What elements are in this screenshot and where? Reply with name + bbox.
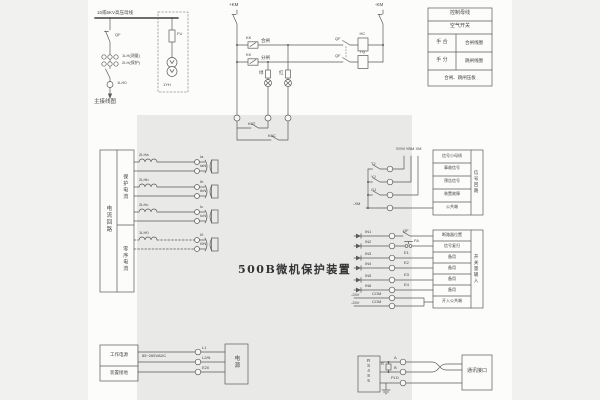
winding-2lhb: 2LHb xyxy=(139,178,149,183)
contact-tj-label: TJ xyxy=(371,162,375,167)
signal-row-common: 公共端 xyxy=(433,205,471,210)
red-lamp-label: 红 xyxy=(279,70,284,75)
ct-zero-label: 1LH0 xyxy=(117,81,127,86)
winding-2lhc: 2LHc xyxy=(139,203,148,208)
com-label-1: COM xyxy=(372,292,381,297)
input-row-spare3: 备用 xyxy=(433,277,471,282)
terminal-i0n: I0N xyxy=(200,242,206,247)
comm-port-label: 通讯接口 xyxy=(462,369,492,375)
input-row-breaker-pos: 断路器位置 xyxy=(433,233,471,238)
trip-coil-label: TQ xyxy=(360,50,366,55)
protect-current-cell: 保护电流 xyxy=(122,174,128,200)
device-title: 500B微机保护装置 xyxy=(238,264,351,277)
legend-air-switch: 空气开关 xyxy=(428,24,492,30)
kk-close-label: KK xyxy=(246,36,251,41)
twisted-pair xyxy=(432,362,462,372)
legend-control-bus: 控制母线 xyxy=(428,11,492,17)
legend-trip-coil: 跳闸线圈 xyxy=(456,58,492,63)
terminal-ibn: IbN xyxy=(200,189,206,194)
signal-row-busbar: 信号小母线 xyxy=(433,154,471,159)
current-circuit-side-label: 电流回路 xyxy=(105,205,111,233)
qf-aux1-label: QF xyxy=(335,37,341,42)
legend-manual-trip: 手 分 xyxy=(428,58,456,64)
input-in6-label: IN6 xyxy=(365,284,371,289)
spare-wire-e1: E1 xyxy=(404,251,409,256)
contact-gj-label: GJ xyxy=(371,188,376,193)
input-in5-label: IN5 xyxy=(365,274,371,279)
terminal-ic: Ic xyxy=(200,205,203,210)
input-row-reset: 信号复归 xyxy=(433,244,471,249)
minus24v-label-1: -24V xyxy=(351,293,359,298)
terminal-ia: Ia xyxy=(200,155,203,160)
com-label-2: COM xyxy=(372,300,381,305)
k0t-contact-label: K0T xyxy=(248,122,255,127)
breaker-label: QF xyxy=(115,33,121,38)
input-in3-label: IN3 xyxy=(365,252,371,257)
spare-wire-e4: E4 xyxy=(404,283,409,288)
terminal-e20: E20 xyxy=(202,366,209,371)
legend-manual-close: 手 合 xyxy=(428,40,456,46)
input-in4-label: IN4 xyxy=(365,262,371,267)
comm-shield-label: PLD xyxy=(391,376,399,381)
pt-label: 1YH xyxy=(163,83,171,88)
main-diagram-caption: 主接线图 xyxy=(94,99,116,105)
ct-measure-label: 1LH(测量) xyxy=(122,54,140,59)
close-label: 合闸 xyxy=(261,38,270,43)
input-in1-label: IN1 xyxy=(365,230,371,235)
qf-position-contact-label: QF xyxy=(403,229,409,234)
kk-trip-contact xyxy=(248,59,258,65)
signal-row-alarm: 预告信号 xyxy=(433,179,471,184)
comm-b-label: B xyxy=(394,366,397,371)
kk-close-contact xyxy=(248,42,258,48)
hv-busbar-label: 10或6KV高压母线 xyxy=(97,10,133,15)
qf-aux2-label: QF xyxy=(335,54,341,59)
rs485-label: RS485 xyxy=(366,358,371,383)
voltage-range-label: 85~265VADC xyxy=(142,354,166,359)
fuse-symbol xyxy=(169,30,175,42)
terminal-ian: IaN xyxy=(200,164,206,169)
terminal-l2n: L2/N xyxy=(202,356,210,361)
schematic-page: 10或6KV高压母线 QF 1LH(测量) 2LH(保护) 1LH0 FU 1Y… xyxy=(0,0,600,400)
ct-protect-label: 2LH(保护) xyxy=(122,61,140,66)
input-in2-label: IN2 xyxy=(365,240,371,245)
power-module-label: 电源 xyxy=(233,355,239,369)
legend-footer: 合闸、跳闸压板 xyxy=(428,75,492,80)
power-circuit-lines xyxy=(100,344,248,384)
closing-coil-label: HC xyxy=(360,32,366,37)
comm-a-label: A xyxy=(394,356,397,361)
green-lamp-label: 绿 xyxy=(259,70,264,75)
winding-2lha: 2LHa xyxy=(139,153,149,158)
negative-control-bus-label: -KM xyxy=(375,2,383,7)
junction-dots xyxy=(109,17,390,373)
winding-1lh0: 1LH0 xyxy=(139,231,149,236)
current-circuit-lines xyxy=(100,150,218,292)
fuse-label: FU xyxy=(177,32,182,37)
terminal-i0: I0 xyxy=(200,233,203,238)
input-row-spare4: 备用 xyxy=(433,288,471,293)
binary-input-side-label: 开关量输入 xyxy=(474,254,479,284)
spare-wire-e3: E3 xyxy=(404,273,409,278)
input-row-common: 开入公共端 xyxy=(433,299,471,304)
contact-yj-label: YJ xyxy=(371,175,376,180)
main-wiring-lines xyxy=(95,12,188,99)
legend-closing-coil: 合闸线圈 xyxy=(456,40,492,45)
reset-button-label: FA xyxy=(414,239,419,244)
terminating-resistor-symbol xyxy=(386,364,391,370)
signal-row-accident: 事故信号 xyxy=(433,166,471,171)
trip-coil-symbol xyxy=(358,56,368,69)
trip-label: 分闸 xyxy=(261,55,270,60)
zero-seq-ct-symbol xyxy=(107,82,113,88)
working-power-cell: 工作电源 xyxy=(100,352,138,357)
kk-trip-label: KK xyxy=(246,53,251,58)
input-row-spare1: 备用 xyxy=(433,255,471,260)
terminal-l1: L1 xyxy=(202,346,206,351)
positive-control-bus-label: +KM xyxy=(229,2,238,7)
terminal-ib: Ib xyxy=(200,180,203,185)
pt-dashed-box xyxy=(158,12,188,92)
signal-row-fault: 装置故障 xyxy=(433,192,471,197)
k0c-contact-label: K0C xyxy=(268,134,276,139)
spare-wire-e2: E2 xyxy=(404,261,409,266)
signal-common-label: -XM xyxy=(353,202,360,207)
schematic-linework xyxy=(0,0,600,400)
terminal-icn: IcN xyxy=(200,214,206,219)
signal-bus-labels: SYM YBM XM xyxy=(396,147,422,152)
comm-r-label: R xyxy=(381,362,384,367)
input-row-spare2: 备用 xyxy=(433,266,471,271)
zero-seq-current-cell: 零序电流 xyxy=(122,246,128,272)
signal-circuit-side-label: 信号回路 xyxy=(474,170,479,194)
minus24v-label-2: -24V xyxy=(351,301,359,306)
ground-symbol xyxy=(382,383,390,394)
device-ground-cell: 装置接地 xyxy=(100,370,138,375)
